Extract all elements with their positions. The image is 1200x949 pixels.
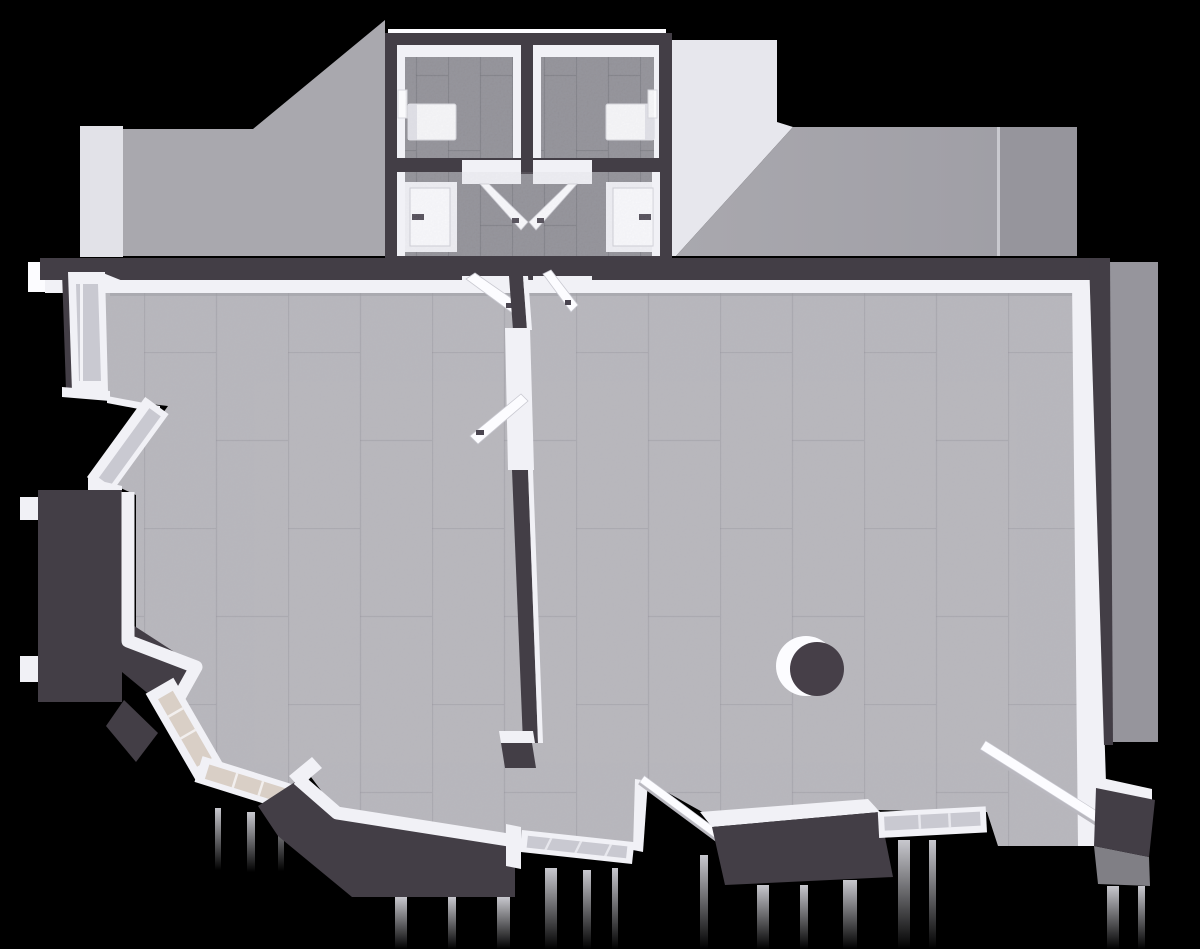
floorplan-svg: [0, 0, 1200, 949]
outer-stub-1: [20, 497, 38, 520]
doorway-center-stub: [521, 156, 533, 174]
trim-contact-shadow: [110, 293, 1073, 296]
outer-stub-2: [20, 656, 38, 682]
divider-foot: [501, 743, 536, 768]
floorplan-render: [0, 0, 1200, 949]
divider-foot-cap: [499, 731, 535, 743]
l-block: [38, 490, 122, 702]
corner-pier-bottom-right: [1093, 776, 1155, 857]
bottom-center-wall-block: [700, 799, 893, 885]
light-patch-left: [80, 126, 123, 257]
cast-shadow-right-wall: [1110, 262, 1158, 742]
cast-shadow-right-2: [1000, 127, 1077, 256]
window-post-left: [506, 824, 521, 869]
annex-mid-wall: [521, 45, 533, 172]
window-left-vertical: [68, 272, 108, 392]
shadow-seam: [997, 127, 1000, 256]
column-top: [790, 642, 844, 696]
